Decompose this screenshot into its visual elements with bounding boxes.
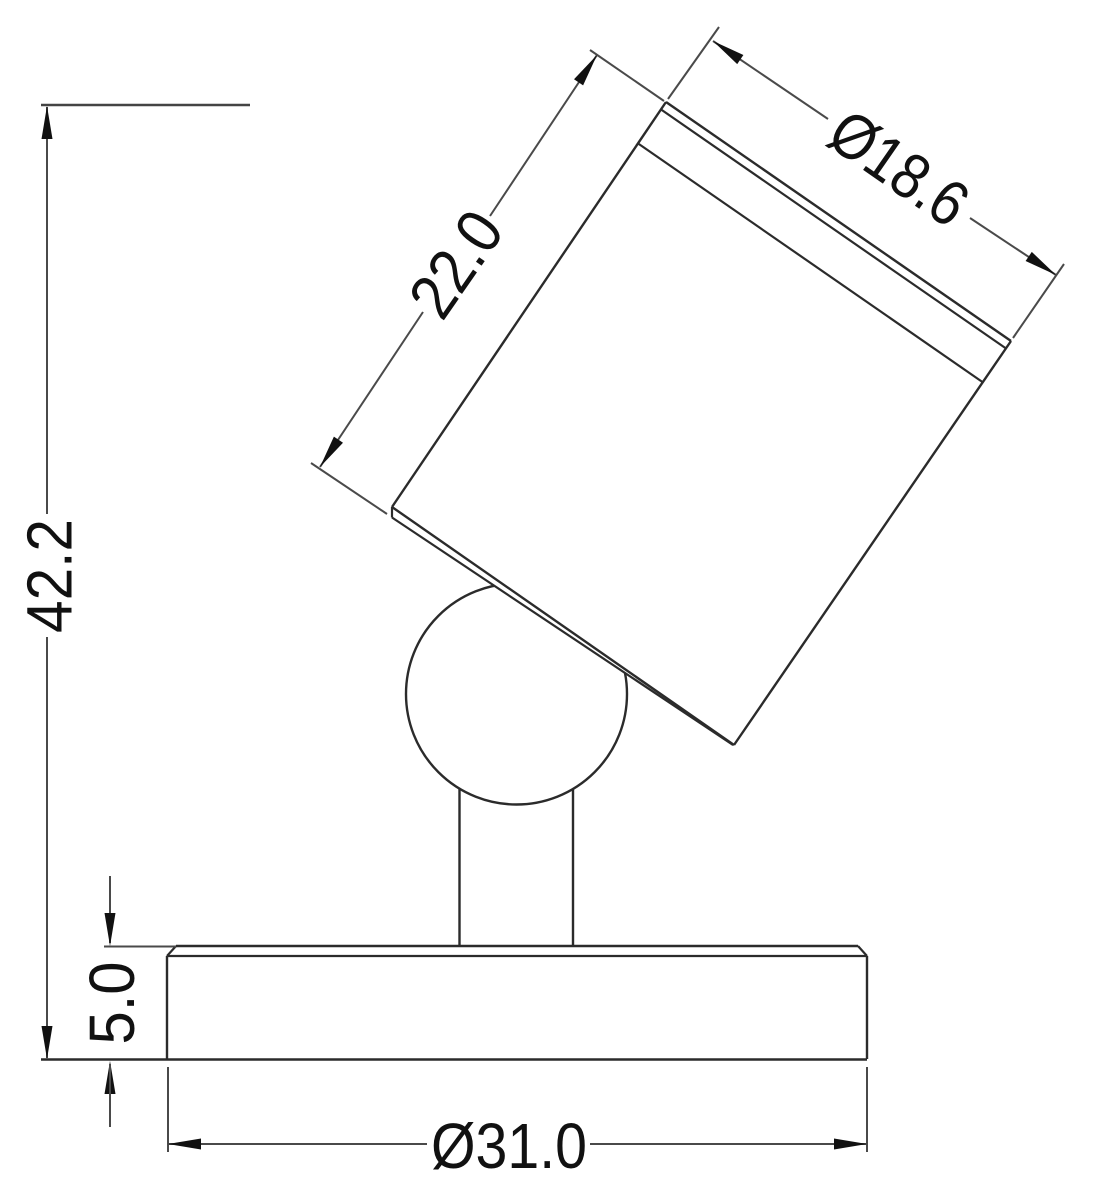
svg-text:5.0: 5.0	[76, 962, 148, 1045]
svg-text:Ø31.0: Ø31.0	[431, 1110, 587, 1182]
svg-text:42.2: 42.2	[14, 519, 86, 633]
